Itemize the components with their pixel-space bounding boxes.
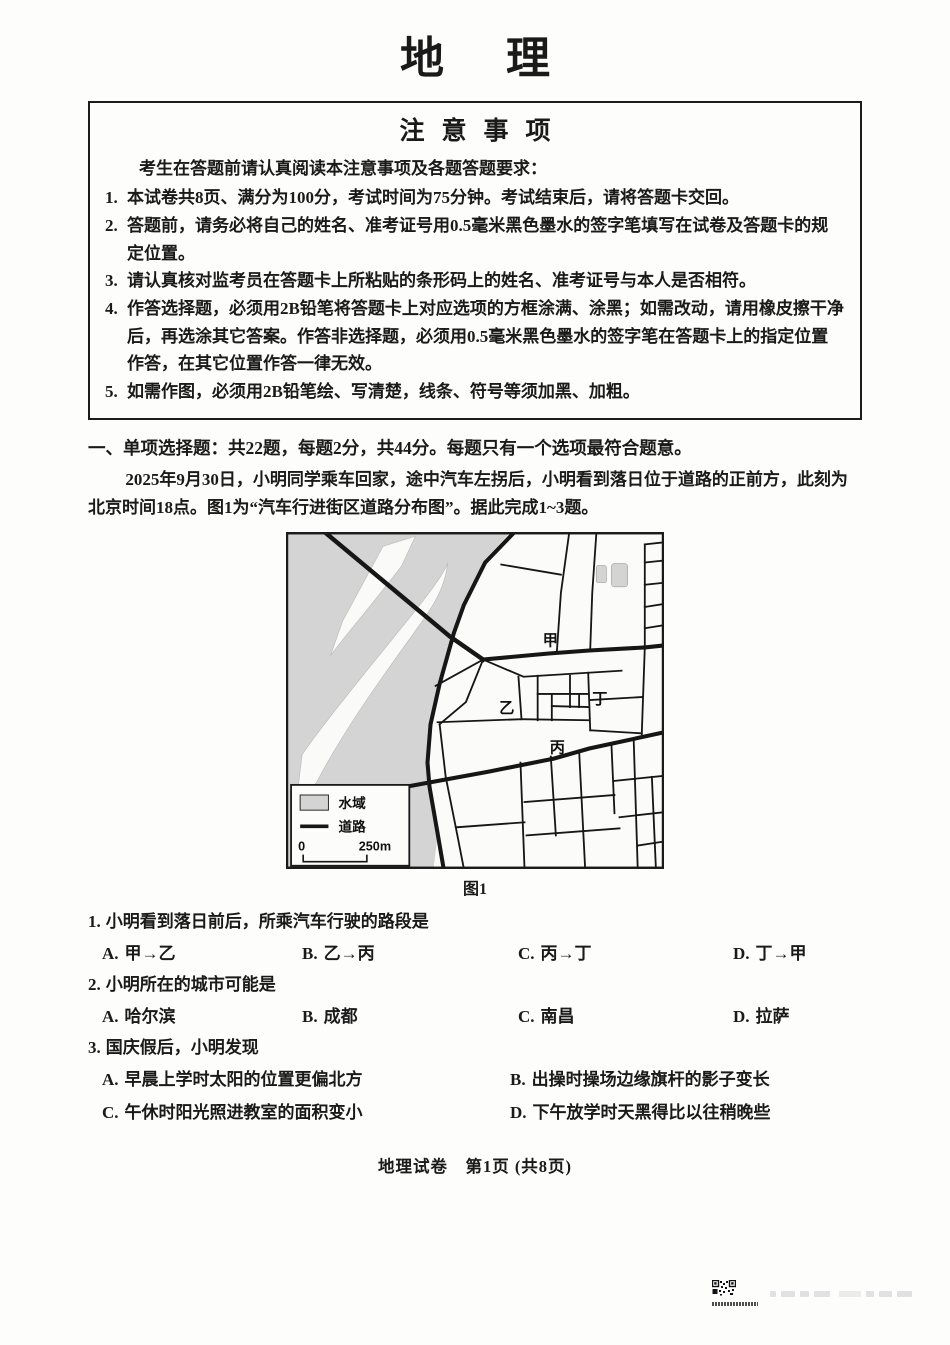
legend-road-label: 道路 [339,819,367,835]
qr-code-icon [712,1280,758,1306]
item-number: 3. [105,267,127,295]
option-label: C. [518,944,535,963]
map-figure: 甲 乙 丁 丙 水域 道路 0 250m [286,532,664,869]
option-text: 出操时操场边缘旗杆的影子变长 [532,1070,770,1089]
option-text: 拉萨 [756,1007,790,1026]
option: D.拉萨 [733,1000,862,1033]
question-number: 1. [88,912,101,931]
option-label: C. [102,1103,119,1122]
option: C.午休时阳光照进教室的面积变小 [102,1096,510,1129]
page-footer: 地理试卷 第1页 (共8页) [88,1153,862,1177]
question-block: 1.小明看到落日前后，所乘汽车行驶的路段是 A.甲→乙 B.乙→丙 C.丙→丁 … [88,907,862,1129]
notice-box: 注意事项 考生在答题前请认真阅读本注意事项及各题答题要求： 1. 本试卷共8页、… [88,101,862,420]
option: C.丙→丁 [518,937,733,970]
option-label: B. [302,1007,318,1026]
option-label: A. [102,1007,119,1026]
option-text: 早晨上学时太阳的位置更偏北方 [125,1070,363,1089]
scale-value: 250m [359,840,391,854]
notice-item: 3. 请认真核对监考员在答题卡上所粘贴的条形码上的姓名、准考证号与本人是否相符。 [105,267,845,295]
legend-water-label: 水域 [339,796,367,812]
option-text: 丙→丁 [541,944,592,963]
option-label: A. [102,1070,119,1089]
micro-print-line [712,1302,758,1306]
page-title: 地理 [0,0,950,85]
option-text: 下午放学时天黑得比以往稍晚些 [533,1103,771,1122]
option-text: 甲→乙 [125,944,176,963]
item-number: 4. [105,295,127,378]
street-map-svg: 甲 乙 丁 丙 水域 道路 0 250m [286,532,664,869]
option-row: A.早晨上学时太阳的位置更偏北方 B.出操时操场边缘旗杆的影子变长 C.午休时阳… [88,1063,862,1129]
option-label: D. [733,1007,750,1026]
question-stem: 2.小明所在的城市可能是 [88,970,862,1000]
map-label-yi: 乙 [499,701,514,718]
option-label: B. [510,1070,526,1089]
item-text: 如需作图，必须用2B铅笔绘、写清楚，线条、符号等须加黑、加粗。 [127,378,845,406]
option: A.早晨上学时太阳的位置更偏北方 [102,1063,510,1096]
exam-paper-page: 地理 注意事项 考生在答题前请认真阅读本注意事项及各题答题要求： 1. 本试卷共… [0,0,950,1345]
option-text: 乙→丙 [324,944,375,963]
notice-item: 2. 答题前，请务必将自己的姓名、准考证号用0.5毫米黑色墨水的签字笔填写在试卷… [105,212,845,267]
pond [611,564,627,587]
notice-item: 5. 如需作图，必须用2B铅笔绘、写清楚，线条、符号等须加黑、加粗。 [105,378,845,406]
item-number: 1. [105,184,127,212]
option-label: A. [102,944,119,963]
option: B.乙→丙 [302,937,518,970]
item-text: 本试卷共8页、满分为100分，考试时间为75分钟。考试结束后，请将答题卡交回。 [127,184,845,212]
figure-caption: 图1 [88,875,862,899]
faint-print-artifacts [770,1291,945,1301]
item-number: 2. [105,212,127,267]
option-label: C. [518,1007,535,1026]
option-label: D. [733,944,750,963]
notice-item: 1. 本试卷共8页、满分为100分，考试时间为75分钟。考试结束后，请将答题卡交… [105,184,845,212]
pond [596,566,606,583]
map-label-bing: 丙 [550,740,565,757]
option-row: A.哈尔滨 B.成都 C.南昌 D.拉萨 [88,1000,862,1033]
item-number: 5. [105,378,127,406]
option: A.哈尔滨 [102,1000,302,1033]
item-text: 请认真核对监考员在答题卡上所粘贴的条形码上的姓名、准考证号与本人是否相符。 [127,267,845,295]
item-text: 作答选择题，必须用2B铅笔将答题卡上对应选项的方框涂满、涂黑；如需改动，请用橡皮… [127,295,845,378]
section-heading: 一、单项选择题：共22题，每题2分，共44分。每题只有一个选项最符合题意。 [88,435,862,461]
option-text: 午休时阳光照进教室的面积变小 [125,1103,363,1122]
question-passage: 2025年9月30日，小明同学乘车回家，途中汽车左拐后，小明看到落日位于道路的正… [88,466,862,522]
scale-zero: 0 [298,840,305,854]
option: D.丁→甲 [733,937,862,970]
question-number: 2. [88,975,101,994]
option-text: 南昌 [541,1007,575,1026]
map-label-ding: 丁 [592,691,607,708]
option: A.甲→乙 [102,937,302,970]
option-label: D. [510,1103,527,1122]
map-legend: 水域 道路 0 250m [291,785,409,866]
option: B.出操时操场边缘旗杆的影子变长 [510,1063,862,1096]
question-number: 3. [88,1038,101,1057]
legend-water-swatch [300,795,328,810]
map-label-jia: 甲 [543,633,558,650]
option-label: B. [302,944,318,963]
question-stem: 1.小明看到落日前后，所乘汽车行驶的路段是 [88,907,862,937]
option: B.成都 [302,1000,518,1033]
notice-intro: 考生在答题前请认真阅读本注意事项及各题答题要求： [105,155,845,183]
option-text: 成都 [324,1007,358,1026]
notice-item: 4. 作答选择题，必须用2B铅笔将答题卡上对应选项的方框涂满、涂黑；如需改动，请… [105,295,845,378]
option-text: 丁→甲 [756,944,807,963]
question-stem: 3.国庆假后，小明发现 [88,1033,862,1063]
option-row: A.甲→乙 B.乙→丙 C.丙→丁 D.丁→甲 [88,937,862,970]
notice-header: 注意事项 [105,111,845,147]
option: C.南昌 [518,1000,733,1033]
option-text: 哈尔滨 [125,1007,176,1026]
option: D.下午放学时天黑得比以往稍晚些 [510,1096,862,1129]
item-text: 答题前，请务必将自己的姓名、准考证号用0.5毫米黑色墨水的签字笔填写在试卷及答题… [127,212,845,267]
